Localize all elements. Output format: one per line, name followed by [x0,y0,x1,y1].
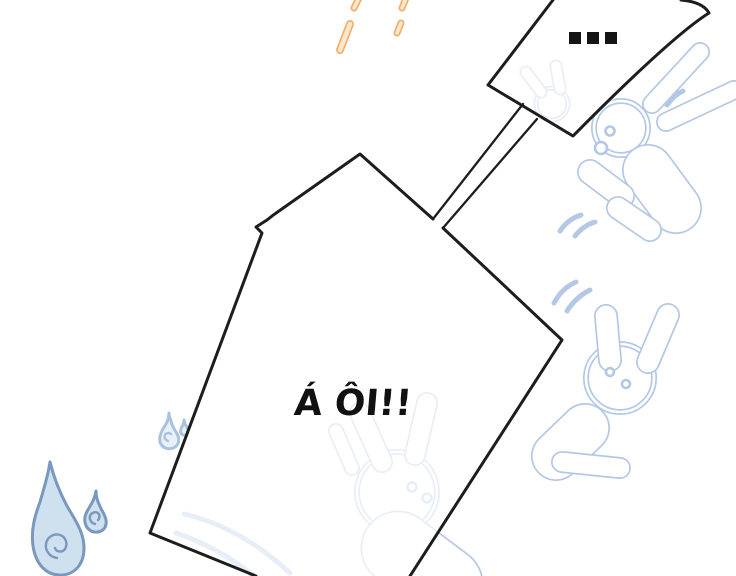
ellipsis-dot [605,32,617,44]
panel-art [0,0,736,576]
ellipsis-dot [569,32,581,44]
rain-strokes-icon [340,0,406,50]
ellipsis-text: ... [569,32,570,33]
ellipsis-dots: ... [569,32,617,44]
bubble-tail-line [433,104,523,219]
main-bubble-text: Á ÔI!! [266,384,439,424]
ellipsis-dot [587,32,599,44]
comic-panel: Á ÔI!! ... [0,0,736,576]
bubble-tail-line [443,119,537,228]
